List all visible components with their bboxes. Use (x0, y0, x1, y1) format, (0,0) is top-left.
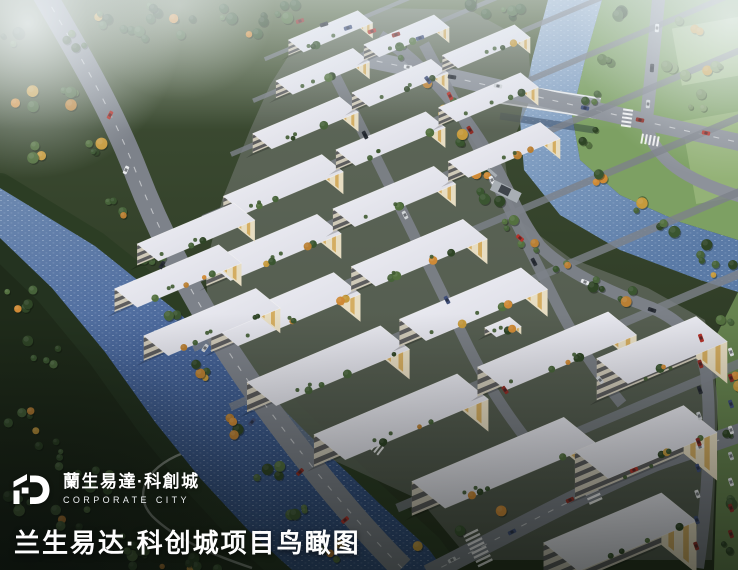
aerial-rendering-page: 蘭生易達·科創城 CORPORATE CITY 兰生易达·科创城项目鸟瞰图 (0, 0, 738, 570)
project-title: 兰生易达·科创城项目鸟瞰图 (14, 523, 361, 560)
logo-english-name: CORPORATE CITY (63, 495, 200, 505)
corporate-logo: 蘭生易達·科創城 CORPORATE CITY (12, 471, 200, 507)
id-monogram-icon (12, 471, 54, 507)
logo-text-block: 蘭生易達·科創城 CORPORATE CITY (63, 473, 200, 505)
logo-chinese-name: 蘭生易達·科創城 (63, 473, 200, 492)
